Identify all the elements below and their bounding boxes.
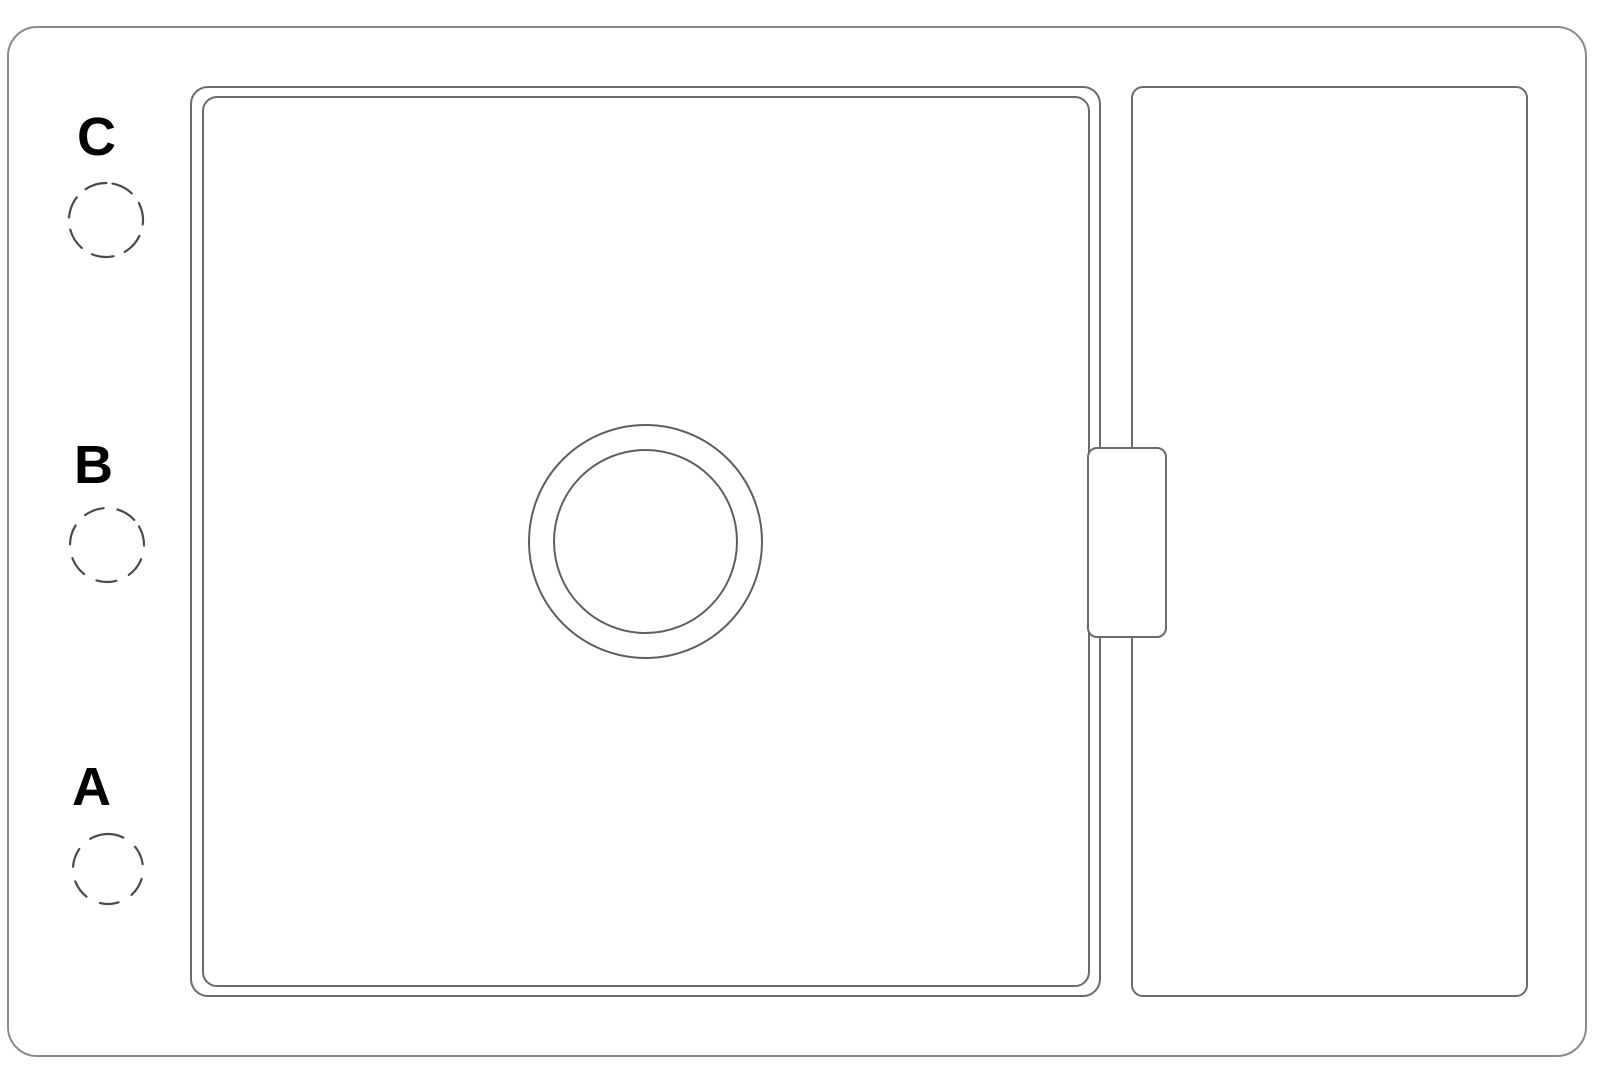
divider-tab <box>1087 447 1167 638</box>
position-label-c: C <box>77 110 116 164</box>
dashed-circle-icon <box>68 829 148 909</box>
position-label-b: B <box>74 438 113 492</box>
dashed-hole-marker-c <box>64 178 148 262</box>
position-label-a: A <box>72 760 111 814</box>
sink-diagram-canvas: C B A <box>0 0 1599 1080</box>
dashed-hole-marker-b <box>65 503 149 587</box>
dashed-circle-icon <box>64 178 148 262</box>
dashed-circle-icon <box>65 503 149 587</box>
dashed-hole-marker-a <box>68 829 148 909</box>
drain-inner-ring <box>553 449 738 634</box>
side-panel-outline <box>1131 86 1528 997</box>
